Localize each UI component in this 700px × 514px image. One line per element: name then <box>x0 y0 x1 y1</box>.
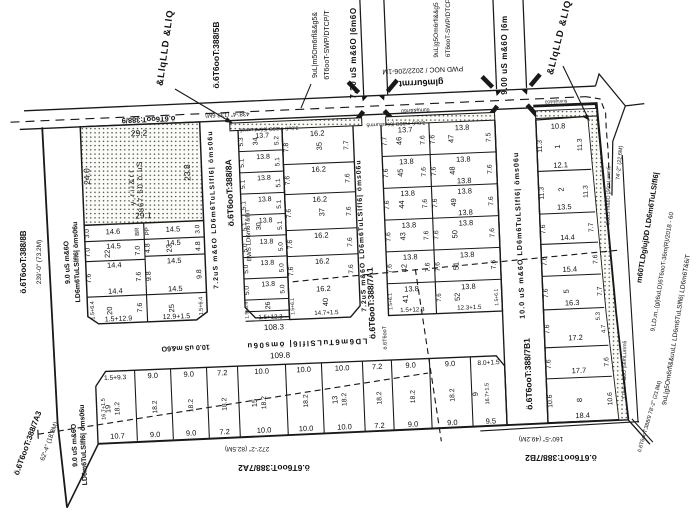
svg-text:5.3: 5.3 <box>238 137 245 147</box>
svg-text:7.20 uS m&6O |6m6O: 7.20 uS m&6O |6m6O <box>349 7 358 98</box>
svg-text:18.2: 18.2 <box>341 392 349 406</box>
svg-text:6urruj&&rr60: 6urruj&&rr60 <box>401 106 430 113</box>
svg-text:1.5+6.1: 1.5+6.1 <box>494 288 501 305</box>
svg-text:17.7: 17.7 <box>571 366 586 376</box>
svg-text:10.7: 10.7 <box>110 431 125 441</box>
svg-text:9.0: 9.0 <box>405 361 416 370</box>
svg-text:7.6: 7.6 <box>489 228 496 238</box>
svg-text:52: 52 <box>453 292 462 301</box>
svg-text:13.7: 13.7 <box>398 125 413 135</box>
svg-text:7.0: 7.0 <box>85 247 92 257</box>
svg-text:13.8: 13.8 <box>260 260 274 268</box>
svg-text:9.0: 9.0 <box>183 369 194 378</box>
svg-text:14.6: 14.6 <box>105 227 120 237</box>
svg-text:12.3+1.5: 12.3+1.5 <box>457 304 482 312</box>
svg-text:13.8: 13.8 <box>457 186 472 196</box>
svg-text:11.3: 11.3 <box>537 140 545 153</box>
svg-text:5.1: 5.1 <box>275 178 282 188</box>
svg-text:3.0: 3.0 <box>84 229 91 239</box>
svg-text:9.0: 9.0 <box>408 419 419 428</box>
svg-text:7.6: 7.6 <box>137 302 144 312</box>
svg-text:7.6: 7.6 <box>437 293 443 302</box>
svg-text:3.0uS m&6O |56mLurrm5: 3.0uS m&6O |56mLurrm5 <box>622 340 629 399</box>
svg-text:1.5+6.4: 1.5+6.4 <box>90 301 97 320</box>
svg-text:48: 48 <box>448 166 457 175</box>
svg-text:16.2: 16.2 <box>314 230 329 240</box>
svg-text:7.6: 7.6 <box>347 237 354 247</box>
svg-text:ö.6T6ooT:388/7B2: ö.6T6ooT:388/7B2 <box>525 453 597 463</box>
svg-text:34: 34 <box>252 137 259 145</box>
svg-text:10.6: 10.6 <box>547 394 555 408</box>
svg-text:16.2: 16.2 <box>316 284 331 294</box>
svg-text:13.8: 13.8 <box>460 250 475 260</box>
svg-text:7.6: 7.6 <box>421 167 428 177</box>
svg-text:7.6: 7.6 <box>86 273 93 283</box>
svg-text:7.6: 7.6 <box>136 271 143 281</box>
svg-text:50: 50 <box>450 230 459 239</box>
svg-text:1.5+9.3: 1.5+9.3 <box>104 374 127 382</box>
svg-text:glm6urrmt: glm6urrmt <box>399 77 444 89</box>
svg-text:2: 2 <box>557 187 566 192</box>
svg-text:7.7: 7.7 <box>381 136 388 146</box>
svg-text:14.4: 14.4 <box>108 286 123 296</box>
svg-text:10.0: 10.0 <box>254 366 269 376</box>
svg-text:7.6: 7.6 <box>433 230 440 240</box>
svg-text:13.8: 13.8 <box>457 176 472 186</box>
svg-text:4.7: 4.7 <box>601 324 607 333</box>
svg-text:18.2: 18.2 <box>449 388 457 402</box>
svg-text:12.1: 12.1 <box>553 160 568 170</box>
svg-text:20: 20 <box>105 306 114 315</box>
svg-text:ö.6T6ooT:388/8B: ö.6T6ooT:388/8B <box>19 230 28 293</box>
svg-text:5.1: 5.1 <box>276 199 283 209</box>
svg-text:41: 41 <box>401 295 410 304</box>
svg-text:4.8: 4.8 <box>144 243 151 253</box>
svg-text:13.8: 13.8 <box>458 208 473 218</box>
svg-text:7.6: 7.6 <box>344 173 351 183</box>
svg-text:6T6ooT-SWP/DTCP: 6T6ooT-SWP/DTCP <box>445 0 452 57</box>
svg-text:7.6: 7.6 <box>434 262 441 272</box>
svg-text:35: 35 <box>315 142 324 151</box>
svg-text:13.8: 13.8 <box>461 282 476 292</box>
svg-text:7.6: 7.6 <box>540 224 547 234</box>
svg-text:26: 26 <box>265 301 272 309</box>
svg-text:1.5+6.4: 1.5+6.4 <box>244 301 251 318</box>
svg-text:7.6: 7.6 <box>348 264 355 274</box>
svg-text:13.8: 13.8 <box>458 218 473 228</box>
svg-text:30: 30 <box>256 222 263 230</box>
svg-text:272'-2" (82.5M): 272'-2" (82.5M) <box>225 445 269 452</box>
svg-text:47: 47 <box>446 134 455 143</box>
svg-text:7.2: 7.2 <box>374 421 385 430</box>
svg-text:7.6: 7.6 <box>423 230 430 240</box>
svg-text:ö.6T6ooT: ö.6T6ooT <box>382 325 389 349</box>
svg-text:1.5+6.1: 1.5+6.1 <box>290 298 297 315</box>
svg-text:9.5: 9.5 <box>485 416 496 425</box>
svg-text:5.3: 5.3 <box>596 311 602 320</box>
svg-text:7.6: 7.6 <box>346 206 353 216</box>
svg-text:14.7+1.5: 14.7+1.5 <box>314 309 339 317</box>
svg-text:13.8: 13.8 <box>258 196 272 204</box>
svg-text:14.5: 14.5 <box>106 241 121 251</box>
svg-text:14.4: 14.4 <box>107 260 122 270</box>
svg-text:23.8: 23.8 <box>182 164 193 181</box>
svg-text:23: 23 <box>165 244 174 253</box>
svg-text:25: 25 <box>167 304 176 313</box>
svg-text:45: 45 <box>396 168 405 177</box>
svg-text:16.2: 16.2 <box>315 256 330 266</box>
svg-text:9.0: 9.0 <box>147 371 158 380</box>
svg-text:7.6: 7.6 <box>592 254 599 264</box>
svg-text:7.5: 7.5 <box>485 132 492 142</box>
svg-text:16.3: 16.3 <box>565 298 580 308</box>
svg-text:7.6: 7.6 <box>383 168 390 178</box>
svg-text:1: 1 <box>553 144 562 149</box>
svg-text:7.2: 7.2 <box>219 427 230 436</box>
svg-text:13: 13 <box>330 395 339 404</box>
svg-text:7.6: 7.6 <box>385 232 392 242</box>
svg-text:109.8: 109.8 <box>270 351 291 361</box>
svg-text:7.2: 7.2 <box>217 368 228 377</box>
svg-text:1.5+12.3: 1.5+12.3 <box>258 313 283 321</box>
svg-text:7.6: 7.6 <box>422 199 429 209</box>
svg-text:7.2: 7.2 <box>372 362 383 371</box>
svg-text:18.2: 18.2 <box>152 400 160 414</box>
svg-text:7.7: 7.7 <box>343 140 350 150</box>
svg-text:13.8: 13.8 <box>404 284 419 294</box>
svg-text:13.8: 13.8 <box>260 238 274 246</box>
svg-text:14.5: 14.5 <box>168 284 183 294</box>
svg-text:13.8: 13.8 <box>399 157 414 167</box>
svg-text:7.6: 7.6 <box>488 196 495 206</box>
svg-text:9.0: 9.0 <box>445 359 456 368</box>
svg-text:13.8: 13.8 <box>401 220 416 230</box>
svg-text:5.1: 5.1 <box>277 220 284 230</box>
svg-text:40: 40 <box>321 298 330 307</box>
svg-text:PP: PP <box>145 227 151 235</box>
svg-text:9.0: 9.0 <box>447 418 458 427</box>
svg-text:18.2: 18.2 <box>303 394 311 408</box>
svg-text:8: 8 <box>575 398 584 403</box>
svg-text:13.8: 13.8 <box>261 281 275 289</box>
svg-text:9.00 uS m&6O |6m: 9.00 uS m&6O |6m <box>500 15 509 94</box>
svg-text:13.8: 13.8 <box>455 123 470 133</box>
svg-text:11.3: 11.3 <box>582 185 590 198</box>
svg-text:18.2: 18.2 <box>376 391 384 405</box>
svg-text:108.3: 108.3 <box>264 322 285 332</box>
svg-text:44: 44 <box>397 200 406 209</box>
svg-text:5.0: 5.0 <box>244 285 251 295</box>
svg-text:BR: BR <box>135 227 141 236</box>
svg-text:1.5+6.4: 1.5+6.4 <box>198 297 205 316</box>
svg-text:7.0: 7.0 <box>135 245 142 255</box>
svg-text:16.2: 16.2 <box>310 128 325 138</box>
svg-text:7.6: 7.6 <box>424 262 431 272</box>
svg-text:ö.6T6ooT:388/7A2: ö.6T6ooT:388/7A2 <box>238 463 310 473</box>
svg-text:ö.6T6ooT:388/5B: ö.6T6ooT:388/5B <box>211 21 221 88</box>
svg-text:7.6: 7.6 <box>544 324 551 334</box>
svg-text:16.2: 16.2 <box>312 194 327 204</box>
svg-text:13.8: 13.8 <box>257 175 271 183</box>
svg-text:7.6: 7.6 <box>545 359 552 369</box>
svg-text:12.9+1.5: 12.9+1.5 <box>163 313 191 321</box>
svg-text:5.1: 5.1 <box>274 157 281 167</box>
svg-text:7.8: 7.8 <box>283 142 290 152</box>
svg-text:1.5+6.1: 1.5+6.1 <box>388 293 395 310</box>
svg-text:6T6ooT-SWP/DTCP/T: 6T6ooT-SWP/DTCP/T <box>324 10 331 80</box>
svg-text:8.0+1.5: 8.0+1.5 <box>477 359 500 367</box>
svg-text:5.1: 5.1 <box>239 179 246 189</box>
svg-text:24.0: 24.0 <box>81 168 92 185</box>
svg-text:37: 37 <box>317 208 326 217</box>
svg-text:49: 49 <box>449 198 458 207</box>
svg-text:160'-5" (49.2M): 160'-5" (49.2M) <box>519 435 563 442</box>
svg-text:7.6: 7.6 <box>419 135 426 145</box>
svg-text:5.0: 5.0 <box>278 263 285 273</box>
svg-text:9uL|g5Om6rfl&&g5: 9uL|g5Om6rfl&&g5 <box>433 2 440 58</box>
svg-text:13.8: 13.8 <box>256 154 270 162</box>
svg-text:5.1: 5.1 <box>240 201 247 211</box>
svg-text:9.8: 9.8 <box>146 271 153 281</box>
svg-text:16.7+1.5: 16.7+1.5 <box>484 383 491 405</box>
svg-text:5.2: 5.2 <box>273 135 280 145</box>
svg-text:17.2: 17.2 <box>568 333 583 343</box>
svg-text:3.0uS m&6O |56mLurrm5: 3.0uS m&6O |56mLurrm5 <box>606 166 613 225</box>
svg-text:7.6: 7.6 <box>432 198 439 208</box>
svg-text:9.8: 9.8 <box>196 269 203 279</box>
svg-text:1.5+12.9: 1.5+12.9 <box>105 315 133 323</box>
svg-text:7.6: 7.6 <box>603 357 610 367</box>
svg-text:7.7: 7.7 <box>588 222 595 232</box>
svg-text:10.0: 10.0 <box>257 425 272 435</box>
svg-text:4.8: 4.8 <box>195 241 202 251</box>
svg-text:43: 43 <box>398 232 407 241</box>
svg-text:5.0: 5.0 <box>243 264 250 274</box>
svg-text:18.2: 18.2 <box>114 402 122 416</box>
svg-text:13.8: 13.8 <box>400 189 415 199</box>
svg-text:14.5: 14.5 <box>165 224 180 234</box>
svg-text:7.6: 7.6 <box>490 259 497 269</box>
svg-text:14.4: 14.4 <box>560 233 575 243</box>
svg-text:7.6: 7.6 <box>384 200 391 210</box>
svg-text:13.8: 13.8 <box>403 252 418 262</box>
svg-text:5.0: 5.0 <box>278 241 285 251</box>
svg-text:11.3: 11.3 <box>539 187 547 200</box>
svg-text:7.7: 7.7 <box>597 286 604 296</box>
svg-text:16.2: 16.2 <box>311 164 326 174</box>
svg-text:9: 9 <box>471 392 480 397</box>
svg-text:5: 5 <box>562 289 571 294</box>
svg-text:18.4: 18.4 <box>575 411 590 421</box>
svg-text:239'-0" (73.2M): 239'-0" (73.2M) <box>36 240 43 284</box>
svg-text:7.6: 7.6 <box>287 239 294 249</box>
svg-text:13.5: 13.5 <box>557 202 572 212</box>
svg-text:15.4: 15.4 <box>562 264 577 274</box>
svg-text:10.6: 10.6 <box>607 392 615 406</box>
svg-text:7.6: 7.6 <box>543 288 550 298</box>
svg-text:7.6: 7.6 <box>288 266 295 276</box>
svg-text:18.2: 18.2 <box>410 390 418 404</box>
svg-text:7.6: 7.6 <box>286 208 293 218</box>
svg-text:9uL|m5Om6rfl&&g5&: 9uL|m5Om6rfl&&g5& <box>312 12 319 78</box>
svg-text:5.1: 5.1 <box>239 158 246 168</box>
svg-text:7.6: 7.6 <box>487 164 494 174</box>
svg-text:10.8: 10.8 <box>551 121 566 131</box>
svg-text:10.0: 10.0 <box>296 365 311 375</box>
svg-text:5.0: 5.0 <box>279 284 286 294</box>
svg-text:10.0: 10.0 <box>335 363 350 373</box>
svg-text:29.2: 29.2 <box>131 128 148 139</box>
svg-text:3.0: 3.0 <box>194 224 201 234</box>
svg-text:22: 22 <box>103 249 112 258</box>
svg-text:7.6: 7.6 <box>429 134 436 144</box>
svg-text:10.0: 10.0 <box>299 424 314 434</box>
svg-text:10.0: 10.0 <box>337 422 352 432</box>
svg-text:7.6: 7.6 <box>431 166 438 176</box>
svg-text:16.7+1.5: 16.7+1.5 <box>101 398 108 420</box>
svg-text:11.3: 11.3 <box>577 138 585 151</box>
svg-text:9.0: 9.0 <box>150 430 161 439</box>
svg-text:13.8: 13.8 <box>456 154 471 164</box>
svg-text:9.0: 9.0 <box>186 428 197 437</box>
svg-text:7.6: 7.6 <box>284 175 291 185</box>
svg-text:46: 46 <box>394 137 403 146</box>
svg-text:14.5: 14.5 <box>167 256 182 266</box>
